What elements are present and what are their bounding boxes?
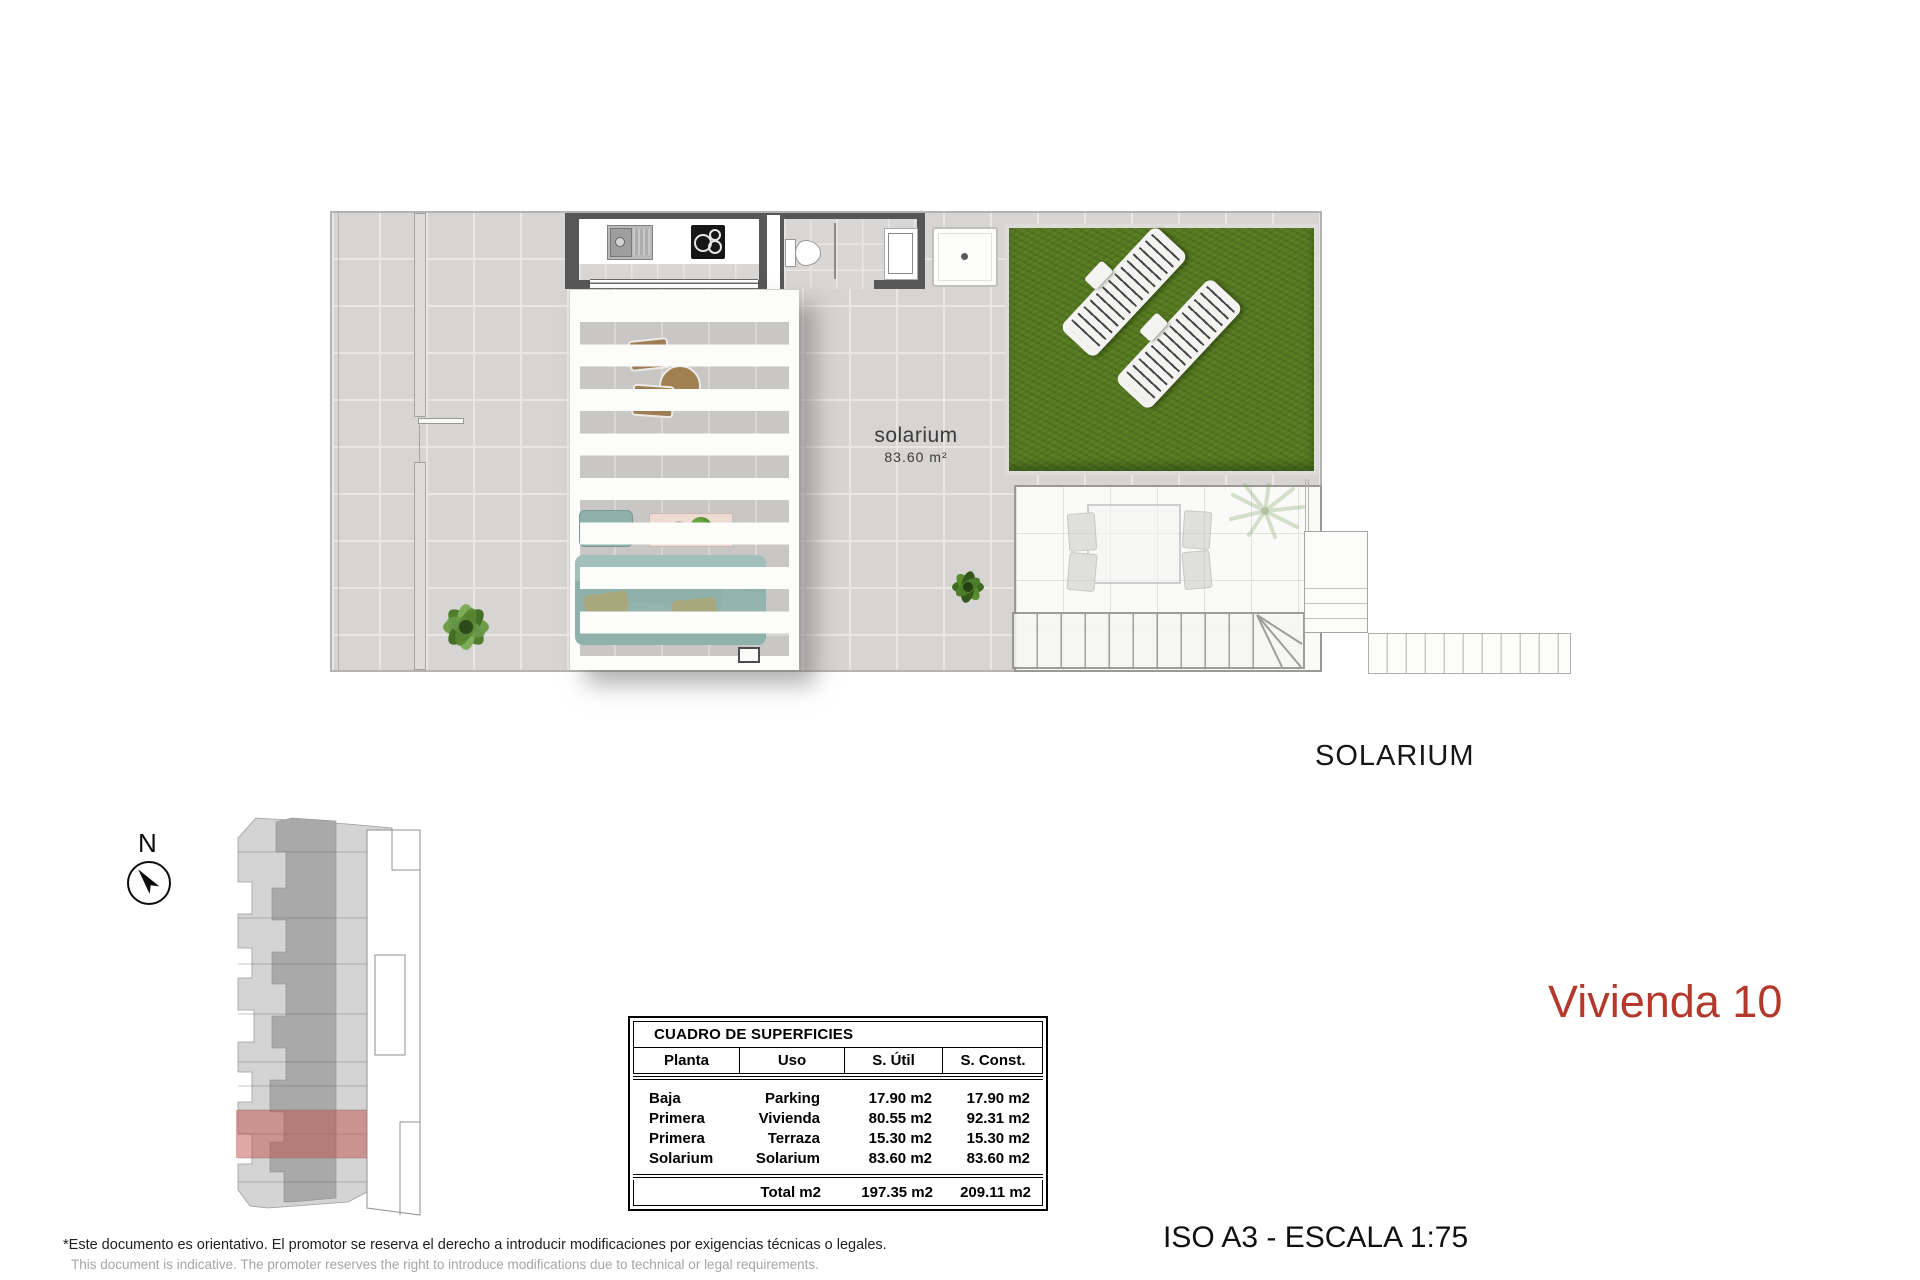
cell-planta: Baja: [633, 1090, 739, 1107]
terrace-table-ghost: [1087, 504, 1181, 584]
cell-uso: Parking: [739, 1090, 844, 1107]
step-line: [1305, 603, 1367, 604]
col-header-planta: Planta: [634, 1048, 740, 1073]
washbasin-icon: [884, 228, 918, 280]
table-row: Primera Vivienda 80.55 m2 92.31 m2: [633, 1108, 1043, 1128]
terrace-chair-ghost: [1182, 510, 1213, 550]
small-plant-icon: [948, 563, 988, 611]
compass-label: N: [138, 828, 157, 859]
hob-icon: [691, 225, 725, 259]
hob-burner: [708, 240, 722, 254]
sink-icon: [607, 225, 653, 260]
interior-wall-upper: [414, 213, 426, 417]
disclaimer-en: This document is indicative. The promote…: [63, 1255, 887, 1274]
total-const: 209.11 m2: [943, 1184, 1043, 1201]
plan-sheet: solarium 83.60 m² SOLARIUM Vivien: [0, 0, 1920, 1280]
sheet-title: Vivienda 10: [1548, 976, 1782, 1028]
table-row: Solarium Solarium 83.60 m2 83.60 m2: [633, 1148, 1043, 1168]
staircase-ghost: [1012, 612, 1305, 669]
surface-table: CUADRO DE SUPERFICIES Planta Uso S. Útil…: [628, 1016, 1048, 1211]
room-label: solarium 83.60 m²: [845, 424, 987, 465]
disclaimer-es: *Este documento es orientativo. El promo…: [63, 1236, 887, 1255]
cell-planta: Primera: [633, 1110, 739, 1127]
col-header-sconst: S. Const.: [943, 1048, 1043, 1073]
cell-const: 15.30 m2: [942, 1130, 1042, 1147]
stair-winders: [1014, 614, 1303, 667]
sink-drainer: [633, 229, 650, 255]
door-leaf: [418, 418, 464, 424]
door-opening-line: [419, 425, 420, 462]
bathroom-door-gap: [784, 279, 874, 289]
cell-uso: Terraza: [739, 1130, 844, 1147]
disclaimer: *Este documento es orientativo. El promo…: [63, 1236, 887, 1274]
utility-block-walls: [565, 213, 925, 289]
table-row: Baja Parking 17.90 m2 17.90 m2: [633, 1088, 1043, 1108]
kitchen-floor: [579, 264, 759, 280]
potted-plant-icon: [435, 595, 497, 659]
sink-faucet: [615, 237, 625, 247]
step-line: [1305, 588, 1367, 589]
table-title: CUADRO DE SUPERFICIES: [633, 1021, 1043, 1048]
table-rule: [633, 1174, 1043, 1178]
summer-kitchen: [579, 219, 759, 280]
cell-util: 17.90 m2: [844, 1090, 942, 1107]
grass-area: [1005, 224, 1318, 475]
toilet-bowl: [795, 240, 821, 266]
stair-landing-ghost: [1304, 531, 1368, 633]
cell-const: 92.31 m2: [942, 1110, 1042, 1127]
door-opening: [767, 215, 780, 289]
shower-drain: [961, 253, 968, 260]
cell-util: 80.55 m2: [844, 1110, 942, 1127]
step-line: [1305, 618, 1367, 619]
left-wall-line: [338, 213, 339, 670]
cell-const: 83.60 m2: [942, 1150, 1042, 1167]
terrace-chair-ghost: [1067, 512, 1098, 552]
table-body: Baja Parking 17.90 m2 17.90 m2 Primera V…: [633, 1082, 1043, 1172]
cell-uso: Vivienda: [739, 1110, 844, 1127]
neighbor-stairs-ghost: [1368, 633, 1571, 674]
cell-uso: Solarium: [739, 1150, 844, 1167]
wall-connector-line: [1305, 479, 1309, 532]
site-key-plan: [228, 812, 432, 1224]
pergola-slats: [580, 300, 789, 656]
floor-heading: SOLARIUM: [1315, 740, 1474, 773]
total-util: 197.35 m2: [845, 1184, 943, 1201]
pergola: [570, 290, 799, 670]
col-header-sutil: S. Útil: [845, 1048, 943, 1073]
table-header-row: Planta Uso S. Útil S. Const.: [633, 1048, 1043, 1074]
north-arrow-icon: [127, 861, 171, 905]
cell-const: 17.90 m2: [942, 1090, 1042, 1107]
table-row: Primera Terraza 15.30 m2 15.30 m2: [633, 1128, 1043, 1148]
terrace-chair-ghost: [1066, 552, 1097, 592]
total-label: Total m2: [740, 1184, 845, 1201]
interior-wall-lower: [414, 462, 426, 670]
palm-tree-icon: [1221, 483, 1309, 545]
bathroom: [784, 219, 917, 280]
cell-planta: Primera: [633, 1130, 739, 1147]
room-area: 83.60 m²: [845, 449, 987, 465]
cell-util: 83.60 m2: [844, 1150, 942, 1167]
shower-tray-icon: [932, 227, 998, 287]
room-name: solarium: [845, 424, 987, 448]
bath-partition-wall: [834, 223, 836, 280]
cell-util: 15.30 m2: [844, 1130, 942, 1147]
cell-planta: Solarium: [633, 1150, 739, 1167]
table-total-row: Total m2 197.35 m2 209.11 m2: [633, 1180, 1043, 1206]
table-rule: [633, 1076, 1043, 1080]
kitchen-window: [590, 279, 758, 289]
terrace-chair-ghost: [1181, 550, 1212, 590]
scale-note: ISO A3 - ESCALA 1:75: [1163, 1221, 1468, 1255]
unit-highlight: [236, 1110, 367, 1158]
col-header-uso: Uso: [740, 1048, 845, 1073]
washbasin-bowl: [888, 233, 913, 274]
